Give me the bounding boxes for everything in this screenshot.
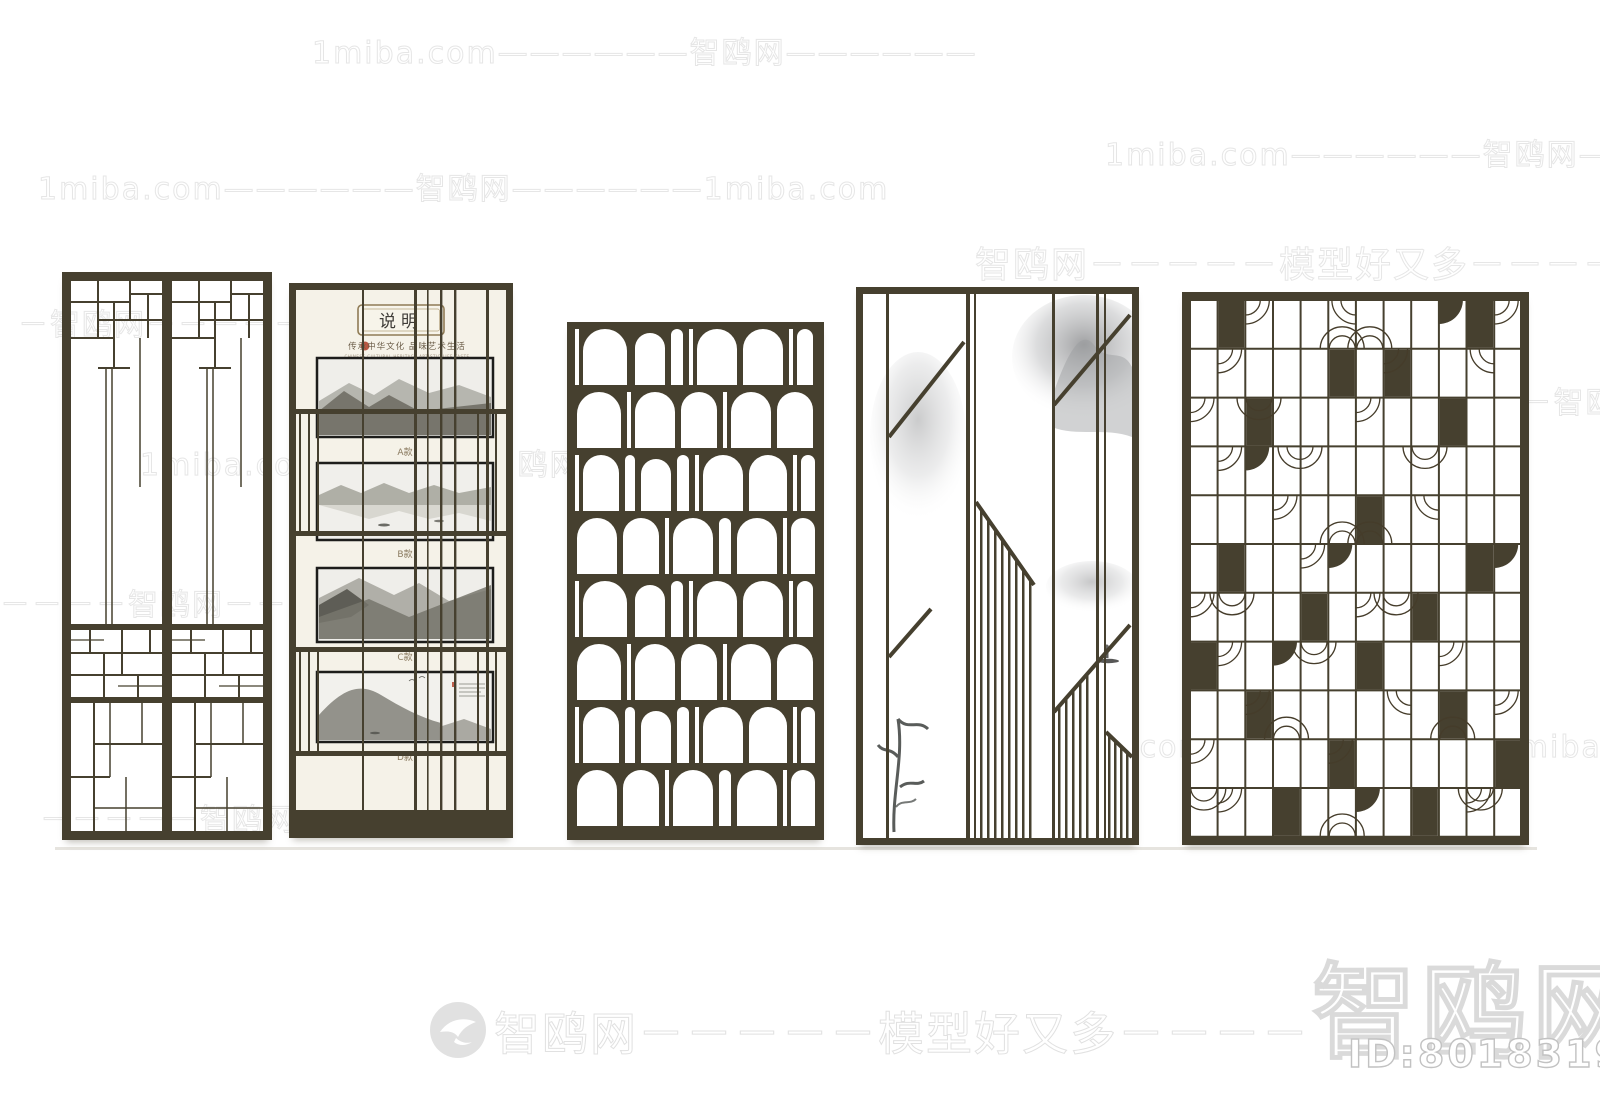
painting-B	[317, 463, 493, 540]
watermark-row: 智鸥网－－－－－模型好又多－－－－	[975, 236, 1600, 288]
title-plaque: 说明	[358, 305, 444, 335]
watermark-row: 1miba.com——————智鸥网——————	[312, 28, 978, 72]
panel-slat-screen	[856, 287, 1139, 845]
seagull-bird-icon	[430, 1002, 486, 1058]
label-A: A款	[397, 446, 412, 458]
panel-lattice-screen	[62, 272, 272, 840]
model-id-text: ID:801831961	[1348, 1032, 1600, 1076]
panel2-subtitle: 传承中华文化 品味艺术生活	[348, 341, 466, 352]
lattice-screen-drawing	[62, 272, 272, 840]
painting-A	[317, 358, 493, 437]
seagull-logo-icon	[430, 1002, 486, 1058]
spec-poster-drawing: 说明 传承中华文化 品味艺术生活 CHINESE CULTURAL HERITA…	[289, 283, 513, 838]
label-B: B款	[397, 548, 412, 560]
label-C: C款	[397, 651, 412, 663]
ground-shadow-line	[55, 847, 1537, 850]
panel-spec-poster: 说明 传承中华文化 品味艺术生活 CHINESE CULTURAL HERITA…	[289, 283, 513, 838]
arch-screen-drawing	[567, 322, 824, 840]
watermark-footer: 智鸥网－－－－－模型好又多－－－－	[494, 998, 1310, 1064]
watermark-row: 1miba.com——————智鸥网———	[1105, 130, 1600, 174]
panel-fan-grid-screen	[1182, 292, 1529, 845]
fan-grid-drawing	[1182, 292, 1529, 845]
panel-arch-screen	[567, 322, 824, 840]
painting-C	[317, 568, 493, 642]
product-image-canvas: 1miba.com——————智鸥网—————— 1miba.com——————…	[0, 0, 1600, 1111]
painting-D	[317, 672, 493, 742]
slat-screen-drawing	[856, 287, 1139, 845]
watermark-row: 1miba.com——————智鸥网——————1miba.com	[38, 164, 889, 208]
